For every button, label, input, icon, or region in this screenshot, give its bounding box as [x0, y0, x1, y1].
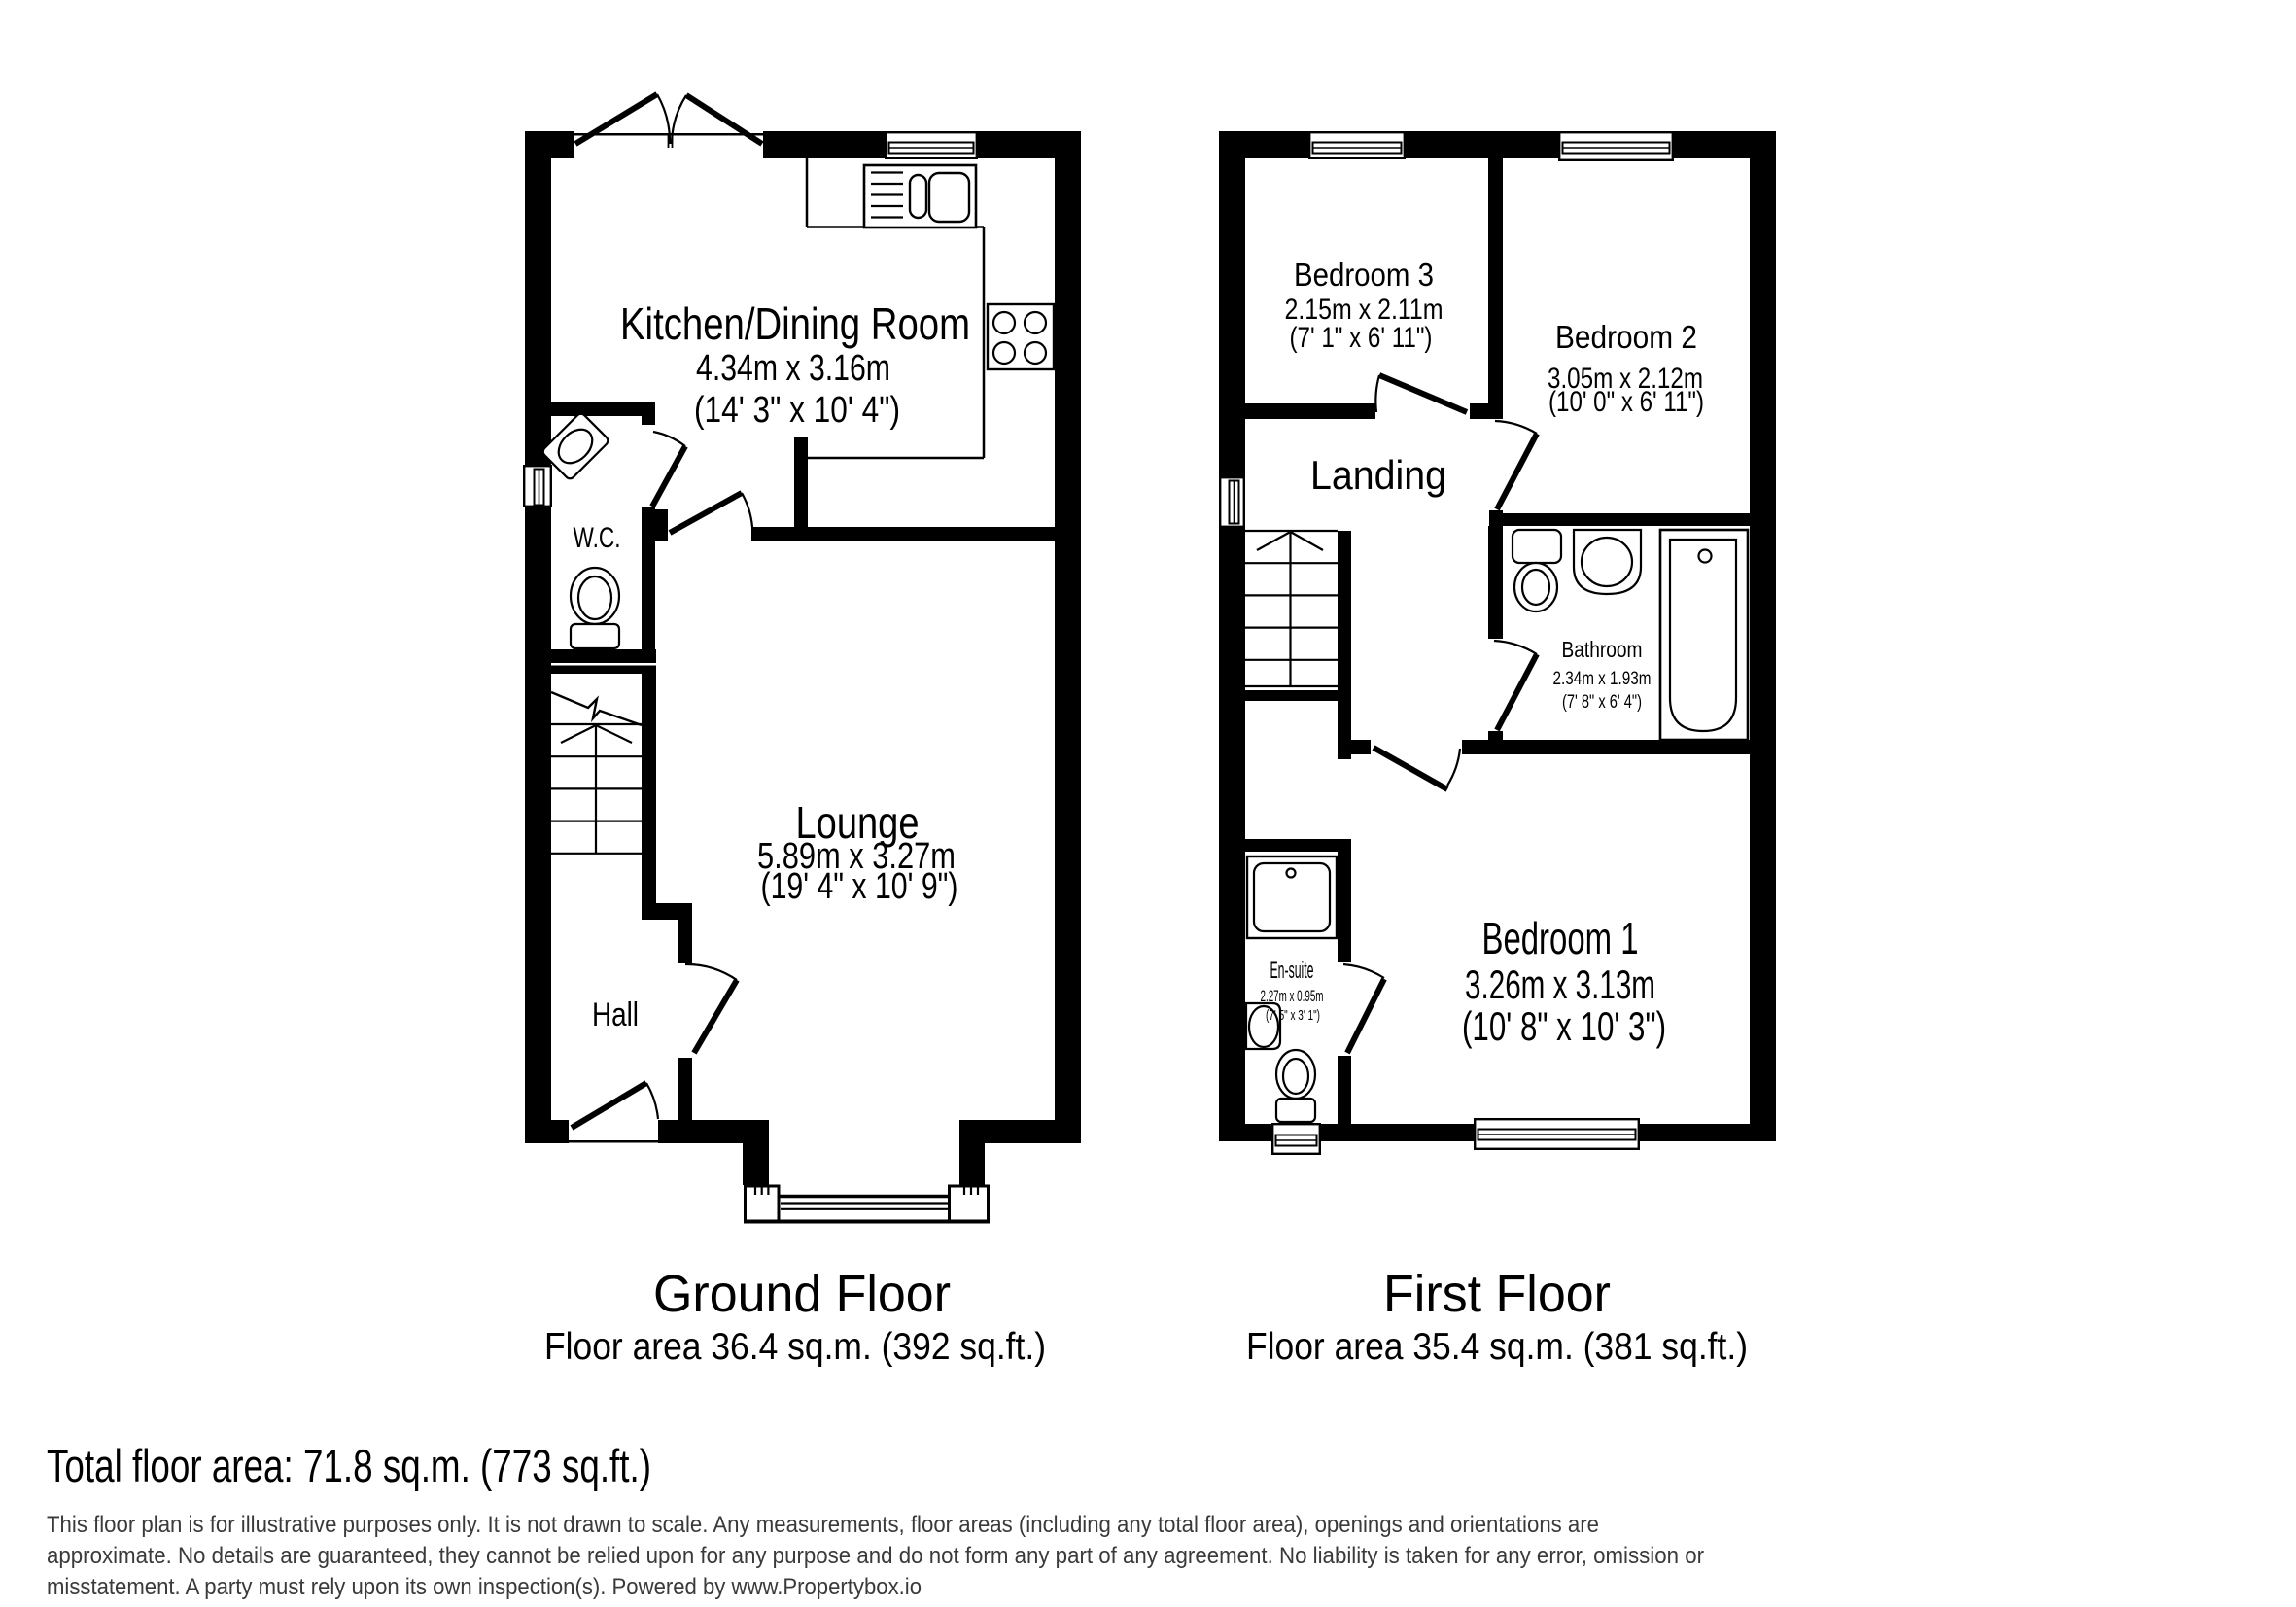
- svg-text:Bedroom 1: Bedroom 1: [1482, 913, 1639, 963]
- svg-text:Ground Floor: Ground Floor: [653, 1265, 951, 1323]
- svg-text:misstatement. A party must rel: misstatement. A party must rely upon its…: [47, 1574, 922, 1600]
- svg-text:First Floor: First Floor: [1383, 1265, 1611, 1323]
- svg-text:2.27m x 0.95m: 2.27m x 0.95m: [1261, 987, 1324, 1005]
- svg-text:Bathroom: Bathroom: [1562, 637, 1643, 662]
- svg-text:En-suite: En-suite: [1270, 958, 1314, 984]
- svg-text:4.34m x 3.16m: 4.34m x 3.16m: [696, 348, 890, 389]
- svg-text:3.26m x 3.13m: 3.26m x 3.13m: [1465, 961, 1655, 1007]
- svg-text:Kitchen/Dining Room: Kitchen/Dining Room: [620, 298, 970, 349]
- svg-text:Landing: Landing: [1310, 452, 1446, 498]
- svg-text:approximate. No details are gu: approximate. No details are guaranteed, …: [47, 1543, 1704, 1569]
- svg-text:(7' 5" x 3' 1"): (7' 5" x 3' 1"): [1266, 1007, 1320, 1024]
- svg-text:(10' 0" x 6' 11"): (10' 0" x 6' 11"): [1548, 386, 1704, 418]
- svg-text:This floor plan is for illustr: This floor plan is for illustrative purp…: [47, 1512, 1599, 1538]
- svg-text:(7' 8" x 6' 4"): (7' 8" x 6' 4"): [1562, 692, 1642, 713]
- svg-text:W.C.: W.C.: [574, 522, 621, 554]
- svg-text:(7' 1" x 6' 11"): (7' 1" x 6' 11"): [1290, 322, 1433, 354]
- svg-text:(14' 3" x 10' 4"): (14' 3" x 10' 4"): [694, 390, 900, 431]
- svg-text:Bedroom 3: Bedroom 3: [1294, 257, 1434, 293]
- svg-text:Total floor area: 71.8 sq.m. (: Total floor area: 71.8 sq.m. (773 sq.ft.…: [47, 1440, 651, 1491]
- svg-text:Bedroom 2: Bedroom 2: [1555, 319, 1697, 355]
- svg-text:Floor area 36.4 sq.m. (392 sq.: Floor area 36.4 sq.m. (392 sq.ft.): [544, 1326, 1046, 1368]
- svg-text:(19' 4" x 10' 9"): (19' 4" x 10' 9"): [761, 866, 958, 907]
- svg-text:(10' 8" x 10' 3"): (10' 8" x 10' 3"): [1462, 1003, 1666, 1049]
- svg-text:Hall: Hall: [592, 996, 639, 1033]
- svg-text:Floor area 35.4 sq.m. (381 sq.: Floor area 35.4 sq.m. (381 sq.ft.): [1246, 1326, 1748, 1368]
- svg-text:2.34m x 1.93m: 2.34m x 1.93m: [1553, 669, 1652, 689]
